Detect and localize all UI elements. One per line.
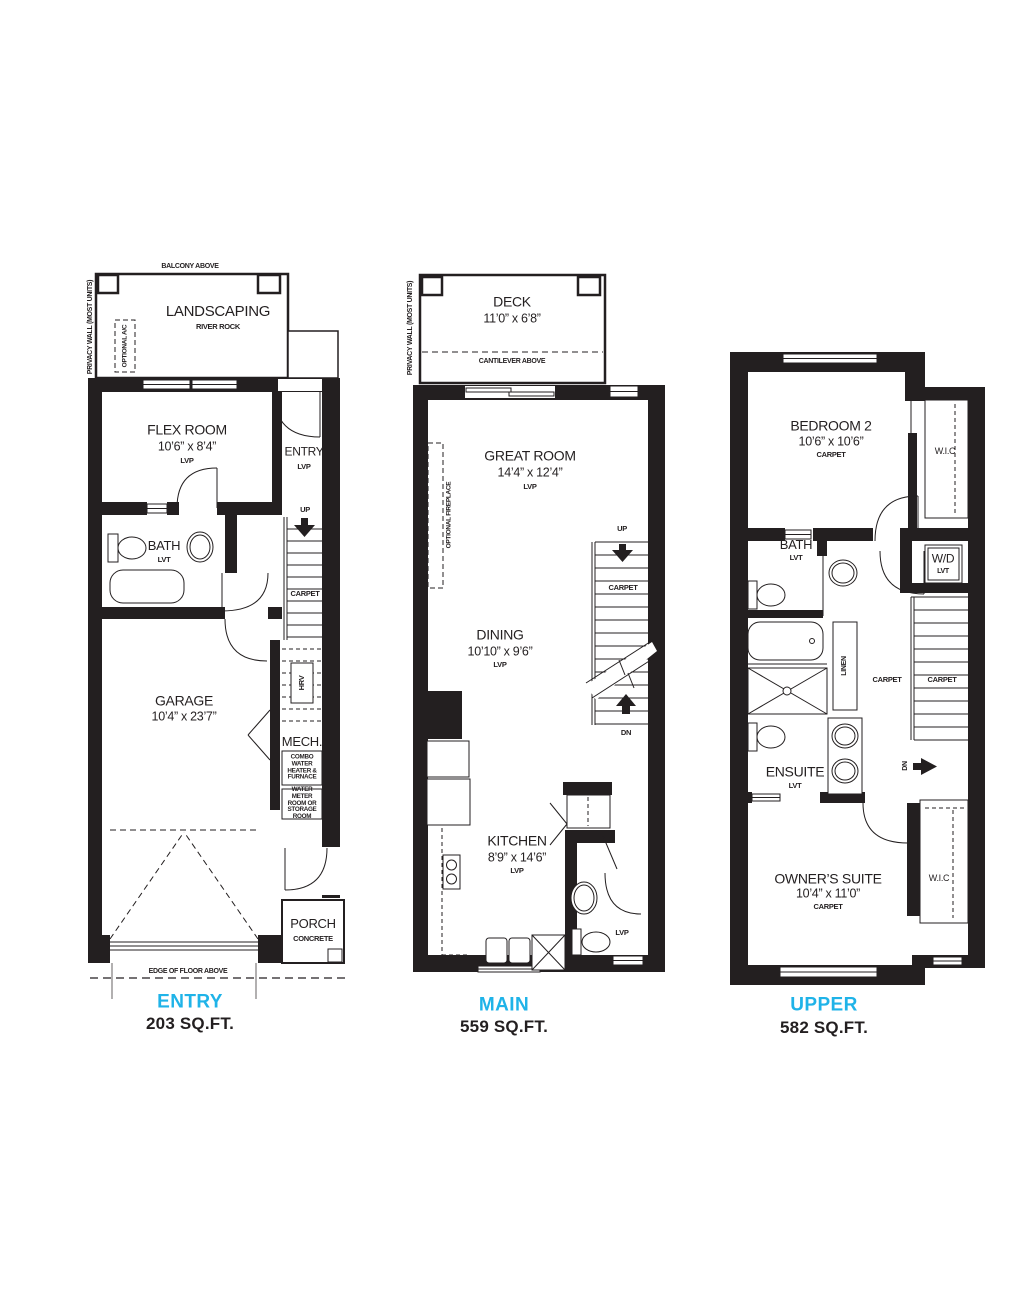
entry-hall-finish: LVP [297, 463, 310, 471]
main-plan-title: MAIN [479, 996, 529, 1017]
garage-label: GARAGE [155, 693, 213, 708]
entry-plan-title: ENTRY [157, 993, 223, 1014]
main-level-plan: PRIVACY WALL (MOST UNITS) DECK 11’0” x 6… [400, 255, 680, 1045]
cooktop-icon [443, 855, 460, 889]
garage-dims: 10’4” x 23’7” [152, 710, 217, 724]
owners-suite-label: OWNER’S SUITE [774, 871, 881, 886]
dining-label: DINING [476, 627, 523, 642]
bath-label: BATH [148, 539, 181, 553]
edge-of-floor-note: EDGE OF FLOOR ABOVE [147, 968, 230, 976]
great-room-dims: 14’4” x 12’4” [498, 466, 563, 480]
stairs-icon [592, 542, 648, 725]
up-arrow-icon [612, 544, 633, 562]
privacy-wall-note: PRIVACY WALL (MOST UNITS) [87, 280, 95, 374]
kitchen-dims: 8’9” x 14’6” [488, 851, 546, 865]
dn-label: DN [902, 761, 910, 771]
flex-room-dims: 10’6” x 8’4” [158, 440, 216, 454]
ensuite-finish: LVT [789, 782, 802, 790]
bath-sink-icon [823, 552, 857, 616]
wic-top-closet [911, 400, 968, 518]
bedroom2-finish: CARPET [816, 451, 845, 459]
landscaping-finish: RIVER ROCK [196, 323, 240, 331]
island-icon [532, 935, 565, 970]
kitchen-finish: LVP [510, 867, 523, 875]
hall-finish: CARPET [872, 676, 901, 684]
owners-suite-dims: 10’4” x 11’0” [796, 887, 860, 901]
stairs-icon [911, 597, 968, 740]
wic-bottom-closet [920, 800, 968, 923]
optional-fireplace-note: OPTIONAL FIREPLACE [445, 482, 452, 549]
hrv-label: HRV [298, 676, 306, 691]
bedroom2-dims: 10’6” x 10’6” [799, 435, 864, 449]
dn-label: DN [621, 729, 631, 737]
cantilever-note: CANTILEVER ABOVE [477, 358, 548, 366]
wd-label: W/D [932, 553, 954, 566]
powder-door [603, 836, 641, 914]
optional-ac-note: OPTIONAL A/C [121, 325, 128, 368]
deck-outline [420, 275, 605, 383]
optional-fireplace-box [428, 443, 443, 588]
entry-level-plan: BALCONY ABOVE PRIVACY WALL (MOST UNITS) … [80, 255, 360, 1045]
ensuite-vanity-icon [828, 718, 862, 794]
stair-break-mask [586, 642, 657, 700]
porch-label: PORCH [290, 917, 335, 931]
porch-outline [282, 900, 344, 963]
bathtub-icon [748, 622, 823, 660]
up-label: UP [300, 506, 310, 514]
up-arrow-icon [294, 518, 315, 537]
entry-hall-label: ENTRY [285, 446, 324, 459]
stairs-icon [284, 517, 322, 640]
upper-plan-linework [715, 338, 1015, 1068]
mech-label: MECH. [282, 735, 322, 749]
flex-room-label: FLEX ROOM [147, 422, 227, 437]
powder-toilet-icon [572, 929, 610, 955]
dn-arrow-icon [913, 758, 937, 775]
water-meter-label: WATER METER ROOM OR STORAGE ROOM [282, 787, 322, 821]
wd-finish: LVT [937, 568, 949, 576]
bath-label: BATH [780, 538, 813, 552]
sink-icon [187, 532, 213, 562]
dining-finish: LVP [493, 661, 506, 669]
kitchen-label: KITCHEN [487, 833, 546, 848]
main-plan-linework [400, 255, 680, 1045]
wic-bottom-label: W.I.C [929, 874, 950, 884]
privacy-wall-note: PRIVACY WALL (MOST UNITS) [407, 281, 415, 375]
upper-plan-sqft: 582 SQ.FT. [780, 1019, 868, 1037]
bath-finish: LVT [790, 554, 803, 562]
deck-dims: 11’0” x 6’8” [483, 312, 540, 326]
bath-finish: LVT [158, 556, 171, 564]
great-room-label: GREAT ROOM [484, 448, 575, 463]
ensuite-toilet-icon [748, 723, 785, 751]
powder-sink-icon [571, 882, 597, 914]
linen-label: LINEN [841, 656, 849, 676]
stair-finish: CARPET [925, 676, 958, 684]
up-label: UP [617, 525, 627, 533]
ensuite-label: ENSUITE [766, 764, 825, 779]
entry-plan-sqft: 203 SQ.FT. [146, 1015, 234, 1033]
stair-finish: CARPET [606, 584, 639, 592]
toilet-icon [108, 534, 146, 562]
dining-dims: 10’10” x 9’6” [468, 645, 533, 659]
door-swings [863, 496, 924, 843]
shower-icon [748, 668, 827, 714]
floor-plan-sheet: BALCONY ABOVE PRIVACY WALL (MOST UNITS) … [0, 0, 1036, 1290]
owners-suite-finish: CARPET [813, 903, 842, 911]
garage-door [110, 830, 258, 950]
powder-finish: LVP [615, 929, 628, 937]
wic-top-label: W.I.C [935, 447, 956, 457]
stair-finish: CARPET [288, 590, 321, 598]
porch-finish: CONCRETE [293, 935, 333, 943]
bedroom2-label: BEDROOM 2 [790, 418, 871, 433]
flex-room-finish: LVP [180, 457, 193, 465]
main-plan-sqft: 559 SQ.FT. [460, 1018, 548, 1036]
combo-heater-label: COMBO WATER HEATER & FURNACE [283, 754, 321, 781]
bath-toilet-icon [748, 581, 785, 609]
landscaping-label: LANDSCAPING [166, 304, 270, 320]
balcony-note: BALCONY ABOVE [161, 263, 218, 271]
deck-label: DECK [493, 294, 531, 309]
fridge-pantry-boxes [427, 741, 470, 825]
upper-plan-title: UPPER [790, 996, 857, 1017]
bathtub-icon [110, 570, 184, 603]
upper-level-plan: BEDROOM 2 10’6” x 10’6” CARPET W.I.C BAT… [715, 338, 1015, 1068]
great-room-finish: LVP [523, 483, 536, 491]
